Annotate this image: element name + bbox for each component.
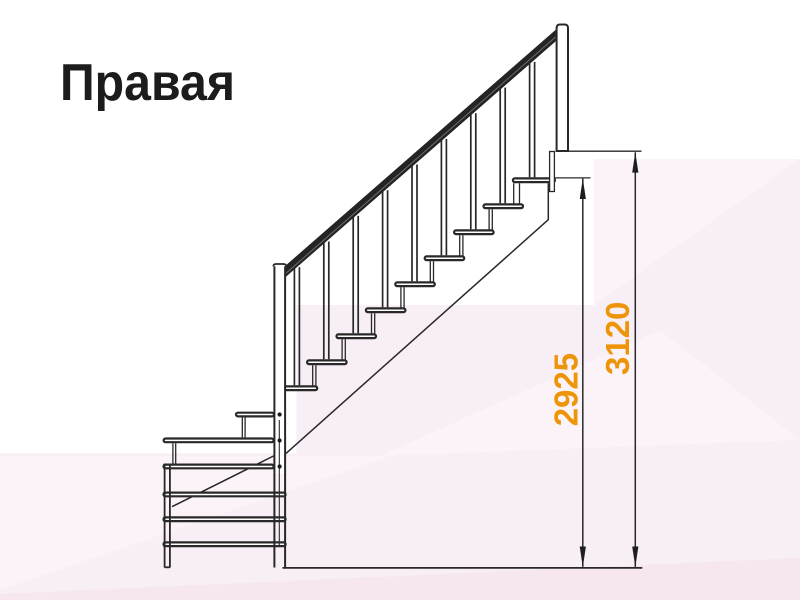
svg-text:2925: 2925 — [548, 353, 585, 426]
svg-text:Правая: Правая — [60, 54, 235, 112]
svg-text:3120: 3120 — [599, 302, 636, 375]
